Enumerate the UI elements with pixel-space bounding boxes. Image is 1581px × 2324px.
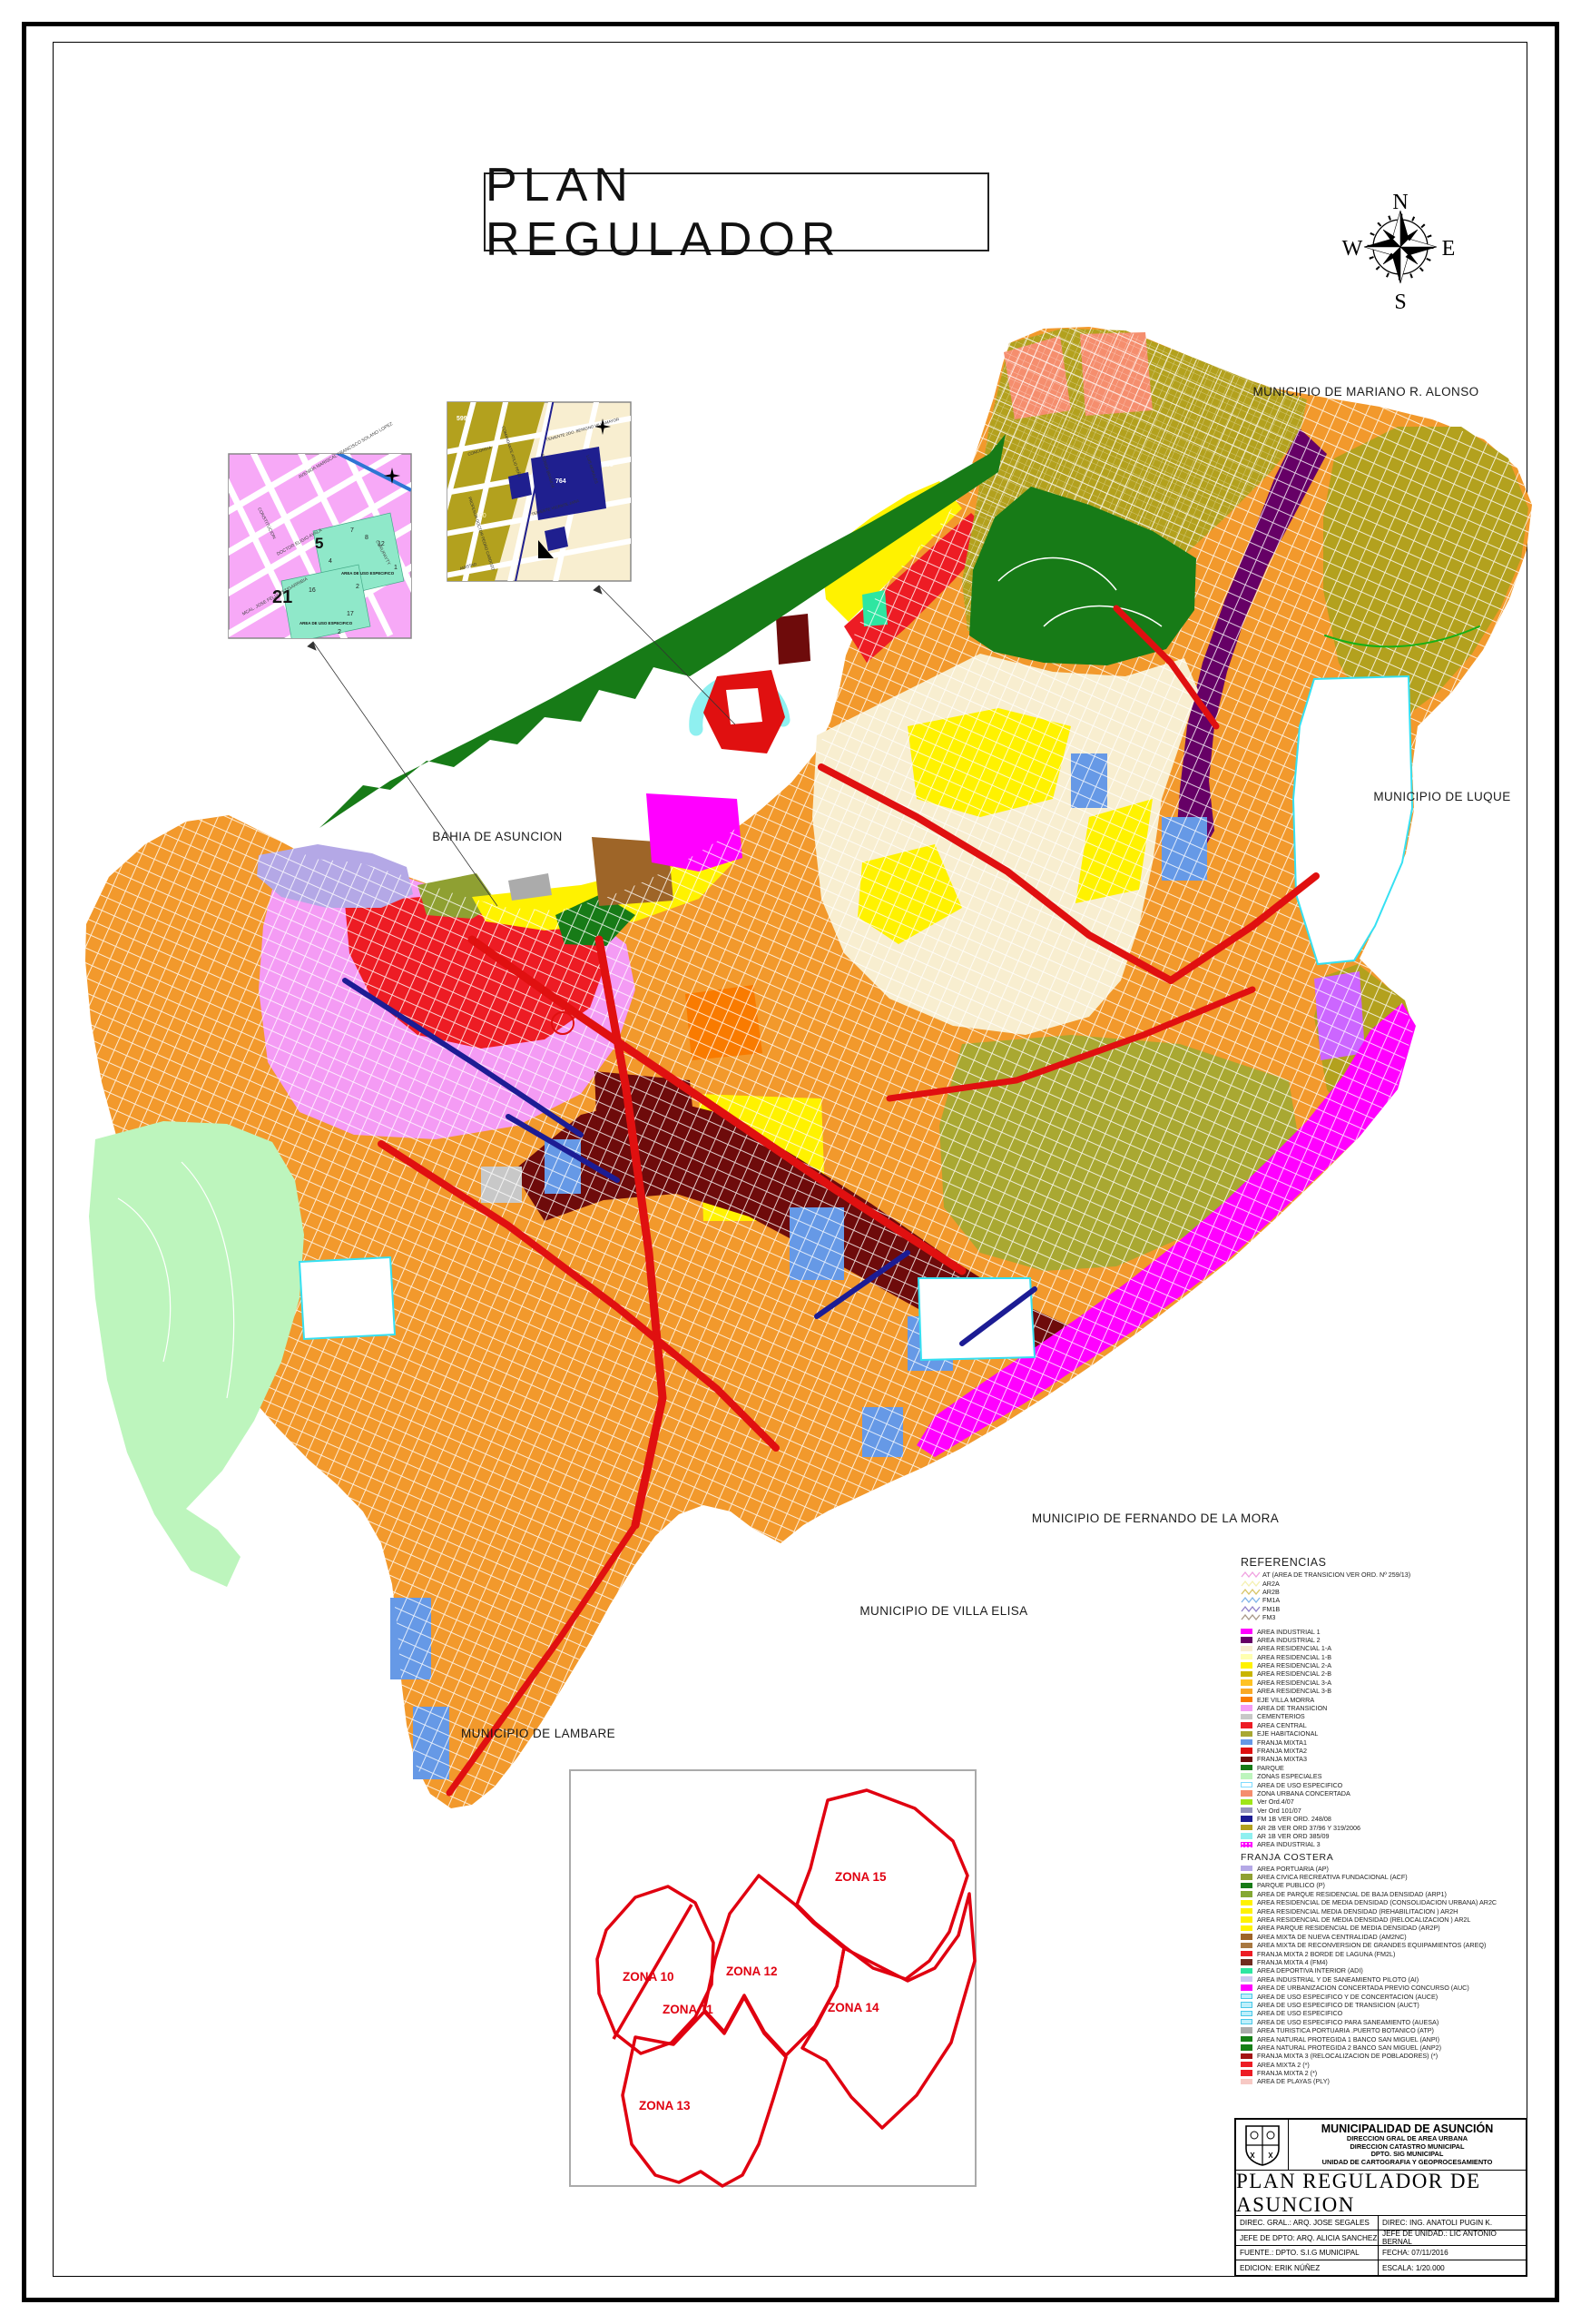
zone-label-11: ZONA 11 — [663, 2003, 713, 2016]
legend-swatch — [1241, 2053, 1252, 2059]
legend-item: FRANJA MIXTA1 — [1241, 1738, 1527, 1746]
inset-a-lot: 7 — [350, 527, 354, 534]
legend-item: AREA RESIDENCIAL 3-B — [1241, 1687, 1527, 1695]
legend-item: AREA PARQUE RESIDENCIAL DE MEDIA DENSIDA… — [1241, 1924, 1527, 1932]
legend-item: AREA TURISTICA PORTUARIA .PUERTO BOTANIC… — [1241, 2026, 1527, 2034]
label-bahia-de-asuncion: BAHIA DE ASUNCION — [432, 830, 562, 843]
legend-item: FM1B — [1241, 1605, 1527, 1613]
inset-b-block-number: 765 — [603, 462, 614, 468]
legend-item: PARQUE PUBLICO (P) — [1241, 1881, 1527, 1889]
legend-swatch — [1241, 1976, 1252, 1982]
legend-swatch — [1241, 1637, 1252, 1642]
legend-item: AREA NATURAL PROTEGIDA 2 BANCO SAN MIGUE… — [1241, 2043, 1527, 2052]
legend-item: AREA RESIDENCIAL MEDIA DENSIDAD (REHABIL… — [1241, 1906, 1527, 1915]
org-dept-lines: DIRECCION GRAL DE AREA URBANADIRECCION C… — [1289, 2135, 1526, 2166]
legend-swatch — [1241, 2002, 1252, 2007]
legend-item: AREA DE TRANSICION — [1241, 1704, 1527, 1712]
legend-swatch — [1241, 1790, 1252, 1796]
legend-swatch — [1241, 1951, 1252, 1956]
parque-area-white — [726, 688, 762, 724]
label-luque: MUNICIPIO DE LUQUE — [1373, 790, 1510, 803]
legend-item: EJE VILLA MORRA — [1241, 1695, 1527, 1703]
compass-rose-icon: N E S W — [1342, 191, 1456, 314]
title-block-rows: DIREC. GRAL.: ARQ. JOSE SEGALES DIREC: I… — [1236, 2216, 1526, 2276]
municipal-coat-of-arms-icon — [1236, 2120, 1289, 2170]
legend-swatch — [1241, 1773, 1252, 1778]
legend-costera-items: AREA PORTUARIA (AP)AREA CIVICA RECREATIV… — [1241, 1865, 1527, 2086]
legend-swatch — [1241, 2044, 1252, 2050]
legend-item: AREA RESIDENCIAL DE MEDIA DENSIDAD (RELO… — [1241, 1915, 1527, 1924]
legend-swatch — [1241, 2027, 1252, 2033]
label-mariano-r-alonso: MUNICIPIO DE MARIANO R. ALONSO — [1252, 385, 1478, 399]
legend-swatch — [1241, 1646, 1252, 1651]
legend-swatch — [1241, 1629, 1252, 1634]
legend-swatch — [1241, 1984, 1252, 1990]
legend-item: AREA DE URBANIZACION CONCERTADA PREVIO C… — [1241, 1984, 1527, 1992]
legend-swatch — [1241, 1825, 1252, 1830]
legend-item: AREA INDUSTRIAL Y DE SANEAMIENTO PILOTO … — [1241, 1975, 1527, 1984]
legend-item: FRANJA MIXTA 2 BORDE DE LAGUNA (FM2L) — [1241, 1949, 1527, 1957]
legend-item: AREA DE PLAYAS (PLY) — [1241, 2077, 1527, 2085]
inset-a-lot: 2 — [356, 584, 359, 590]
zone-label-12: ZONA 12 — [726, 1965, 778, 1978]
legend-item: AREA CENTRAL — [1241, 1721, 1527, 1729]
inset-map-a: 5 21 7 8 12 4 1 2 16 17 2 AREA DE USO ES… — [218, 395, 431, 681]
legend-item: FRANJA MIXTA 3 (RELOCALIZACION DE POBLAD… — [1241, 2052, 1527, 2060]
legend: REFERENCIAS AT (AREA DE TRANSICION VER O… — [1241, 1556, 1527, 2086]
legend-swatch — [1241, 1994, 1252, 1999]
inset-a-lot: 1 — [394, 565, 398, 571]
inset-a-lot: 16 — [309, 587, 316, 594]
plan-regulador-sheet: { "page": { "title": "PLAN REGULADOR" },… — [0, 0, 1581, 2324]
label-lambare: MUNICIPIO DE LAMBARE — [461, 1727, 615, 1740]
title-block-row: JEFE DE DPTO: ARQ. ALICIA SANCHEZ JEFE D… — [1236, 2230, 1526, 2245]
inset-a-area-label: AREA DE USO ESPECIFICO — [300, 621, 353, 625]
legend-swatch — [1241, 1816, 1252, 1821]
legend-swatch — [1241, 1807, 1252, 1813]
legend-swatch — [1241, 1891, 1252, 1896]
inset-b-block-number: 599 — [457, 416, 467, 422]
legend-item: AREA MIXTA 2 (*) — [1241, 2060, 1527, 2068]
zone-overview-inset: ZONA 10 ZONA 11 ZONA 12 ZONA 13 ZONA 14 … — [570, 1770, 976, 2186]
inset-a-block-number: 5 — [315, 535, 323, 552]
inset-a-area-label: AREA DE USO ESPECIFICO — [341, 571, 395, 576]
legend-swatch — [1241, 2062, 1252, 2067]
legend-item: AR2B — [1241, 1588, 1527, 1596]
legend-swatch — [1241, 1757, 1252, 1762]
title-block: MUNICIPALIDAD DE ASUNCIÓN DIRECCION GRAL… — [1234, 2118, 1527, 2277]
legend-item: AREA DE USO ESPECIFICO — [1241, 2009, 1527, 2017]
legend-item: AREA INDUSTRIAL 3 — [1241, 1840, 1527, 1848]
legend-swatch — [1241, 1722, 1252, 1728]
label-villa-elisa: MUNICIPIO DE VILLA ELISA — [859, 1604, 1027, 1618]
legend-swatch — [1241, 2036, 1252, 2042]
legend-swatch — [1241, 1748, 1252, 1753]
compass-s: S — [1394, 290, 1406, 314]
legend-swatch — [1241, 1934, 1252, 1939]
legend-item: AREA INDUSTRIAL 1 — [1241, 1627, 1527, 1635]
inset-a-lot: 4 — [329, 558, 332, 565]
legend-swatch — [1241, 1782, 1252, 1787]
legend-item: AREA DE USO ESPECIFICO Y DE CONCERTACION… — [1241, 1992, 1527, 2000]
legend-item: AREA DE USO ESPECIFICO DE TRANSICION (AU… — [1241, 2001, 1527, 2009]
legend-swatch — [1241, 1959, 1252, 1965]
legend-item: AREA RESIDENCIAL 3-A — [1241, 1679, 1527, 1687]
legend-swatch — [1241, 1925, 1252, 1931]
legend-item: AR 2B VER ORD 37/96 Y 319/2006 — [1241, 1823, 1527, 1831]
zone-label-14: ZONA 14 — [828, 2001, 879, 2014]
legend-swatch — [1241, 1900, 1252, 1905]
legend-item: ZONAS ESPECIALES — [1241, 1772, 1527, 1780]
legend-swatch — [1241, 1671, 1252, 1677]
legend-swatch — [1241, 1943, 1252, 1948]
legend-item: AREA RESIDENCIAL 1-A — [1241, 1644, 1527, 1652]
legend-item: Ver Ord.4/07 — [1241, 1797, 1527, 1806]
sheet-title-box: PLAN REGULADOR — [484, 172, 989, 251]
zone-label-10: ZONA 10 — [623, 1970, 674, 1984]
legend-item: AREA NATURAL PROTEGIDA 1 BANCO SAN MIGUE… — [1241, 2034, 1527, 2043]
legend-swatch — [1241, 2070, 1252, 2075]
legend-item: FRANJA MIXTA 4 (FM4) — [1241, 1958, 1527, 1966]
legend-item: ZONA URBANA CONCERTADA — [1241, 1789, 1527, 1797]
inset-a-lot: 8 — [365, 535, 368, 541]
legend-swatch — [1241, 2019, 1252, 2024]
legend-item: AREA MIXTA DE NUEVA CENTRALIDAD (AM2NC) — [1241, 1933, 1527, 1941]
legend-item: AREA DE USO ESPECIFICO PARA SANEAMIENTO … — [1241, 2018, 1527, 2026]
legend-swatch — [1241, 2011, 1252, 2016]
legend-swatch — [1241, 1714, 1252, 1719]
legend-item: AREA DE USO ESPECIFICO — [1241, 1780, 1527, 1788]
legend-item: Ver Ord 101/07 — [1241, 1807, 1527, 1815]
legend-item: AREA PORTUARIA (AP) — [1241, 1865, 1527, 1873]
legend-swatch — [1241, 1689, 1252, 1694]
legend-item: FM 1B VER ORD. 248/08 — [1241, 1815, 1527, 1823]
org-name: MUNICIPALIDAD DE ASUNCIÓN — [1289, 2122, 1526, 2135]
legend-item: AREA INDUSTRIAL 2 — [1241, 1636, 1527, 1644]
legend-item: AREA DEPORTIVA INTERIOR (ADI) — [1241, 1966, 1527, 1974]
label-fernando-de-la-mora: MUNICIPIO DE FERNANDO DE LA MORA — [1032, 1512, 1279, 1525]
legend-item: PARQUE — [1241, 1764, 1527, 1772]
legend-swatch — [1241, 1765, 1252, 1770]
legend-area-items: AREA INDUSTRIAL 1AREA INDUSTRIAL 2AREA R… — [1241, 1627, 1527, 1848]
map-title: PLAN REGULADOR DE ASUNCION — [1236, 2171, 1526, 2216]
inset-b-block-number: 764 — [555, 478, 566, 485]
legend-item: FM3 — [1241, 1613, 1527, 1621]
legend-costera-title: FRANJA COSTERA — [1241, 1852, 1527, 1863]
legend-swatch — [1241, 1799, 1252, 1805]
compass-n: N — [1392, 191, 1408, 214]
compass-e: E — [1442, 237, 1456, 261]
legend-item: FM1A — [1241, 1596, 1527, 1604]
org-dept-line: UNIDAD DE CARTOGRAFIA Y GEOPROCESAMIENTO — [1289, 2159, 1526, 2167]
legend-swatch — [1241, 1874, 1252, 1879]
legend-item: AREA RESIDENCIAL 2-A — [1241, 1661, 1527, 1669]
legend-item: EJE HABITACIONAL — [1241, 1729, 1527, 1738]
title-block-row: FUENTE.: DPTO. S.I.G MUNICIPAL FECHA: 07… — [1236, 2246, 1526, 2260]
legend-swatch — [1241, 1842, 1252, 1847]
legend-line-items: AT (AREA DE TRANSICION VER ORD. Nº 259/1… — [1241, 1571, 1527, 1621]
legend-swatch — [1241, 1833, 1252, 1838]
title-block-row: DIREC. GRAL.: ARQ. JOSE SEGALES DIREC: I… — [1236, 2216, 1526, 2230]
legend-swatch — [1241, 1697, 1252, 1702]
legend-item: CEMENTERIOS — [1241, 1712, 1527, 1720]
legend-item: AREA MIXTA DE RECONVERSION DE GRANDES EQ… — [1241, 1941, 1527, 1949]
legend-item: AREA RESIDENCIAL 2-B — [1241, 1669, 1527, 1678]
legend-item: FRANJA MIXTA 2 (*) — [1241, 2069, 1527, 2077]
zonas-especiales-sw — [89, 1121, 304, 1587]
legend-item: AREA DE PARQUE RESIDENCIAL DE BAJA DENSI… — [1241, 1890, 1527, 1898]
title-block-row: EDICION: ERIK NÚÑEZ ESCALA: 1/20.000 — [1236, 2260, 1526, 2275]
legend-item: FRANJA MIXTA2 — [1241, 1747, 1527, 1755]
legend-swatch — [1241, 1916, 1252, 1922]
legend-title: REFERENCIAS — [1241, 1556, 1527, 1569]
inset-a-lot: 2 — [338, 629, 341, 635]
legend-item: FRANJA MIXTA3 — [1241, 1755, 1527, 1763]
legend-swatch — [1241, 2079, 1252, 2084]
legend-item: AR 1B VER ORD 385/09 — [1241, 1832, 1527, 1840]
legend-swatch — [1241, 1968, 1252, 1974]
legend-swatch — [1241, 1654, 1252, 1659]
sheet-title: PLAN REGULADOR — [486, 158, 987, 267]
legend-item: AT (AREA DE TRANSICION VER ORD. Nº 259/1… — [1241, 1571, 1527, 1579]
inset-a-lot: 17 — [347, 611, 354, 617]
legend-swatch — [1241, 1705, 1252, 1710]
legend-item: AREA RESIDENCIAL 1-B — [1241, 1653, 1527, 1661]
legend-swatch — [1241, 1739, 1252, 1745]
legend-swatch — [1241, 1679, 1252, 1685]
zone-label-13: ZONA 13 — [639, 2099, 691, 2112]
legend-item: AREA CIVICA RECREATIVA FUNDACIONAL (ACF) — [1241, 1873, 1527, 1881]
legend-swatch — [1241, 1662, 1252, 1668]
legend-swatch — [1241, 1866, 1252, 1871]
legend-item: AR2A — [1241, 1579, 1527, 1587]
legend-swatch — [1241, 1731, 1252, 1737]
legend-swatch — [1241, 1883, 1252, 1888]
zone-label-15: ZONA 15 — [835, 1870, 887, 1884]
inset-map-b: 599 600 764 765 CONCORDIA AMISTAD TENIEN… — [436, 390, 635, 590]
compass-w: W — [1342, 237, 1363, 261]
legend-item: AREA RESIDENCIAL DE MEDIA DENSIDAD (CONS… — [1241, 1898, 1527, 1906]
legend-swatch — [1241, 1908, 1252, 1914]
